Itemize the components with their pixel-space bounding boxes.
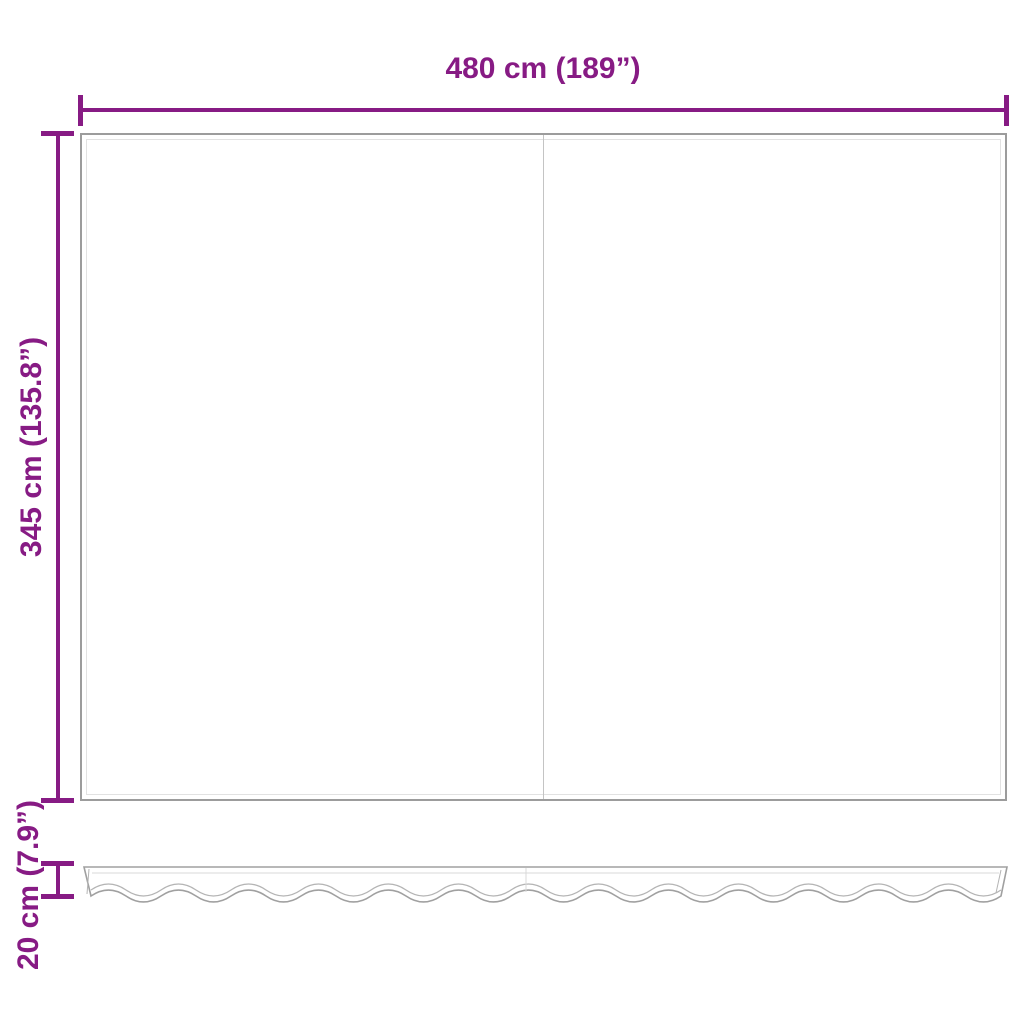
fabric-panel-center-seam xyxy=(543,135,544,799)
dimension-end-cap xyxy=(41,894,74,899)
dimension-end-cap xyxy=(41,131,74,136)
valance-strip xyxy=(80,864,1010,914)
valance-outline xyxy=(84,867,1007,902)
height-dimension-label: 345 cm (135.8”) xyxy=(17,337,47,557)
dimension-end-cap xyxy=(1004,95,1009,126)
product-dimension-diagram: 480 cm (189”) 345 cm (135.8”) 20 cm (7.9… xyxy=(0,0,1024,1024)
height-dimension-line xyxy=(56,133,60,801)
valance-height-dimension-line xyxy=(56,863,60,897)
awning-fabric-panel xyxy=(80,133,1007,801)
width-dimension-line xyxy=(79,108,1008,112)
valance-height-dimension-label: 20 cm (7.9”) xyxy=(14,800,44,970)
dimension-end-cap xyxy=(41,861,74,866)
width-dimension-label: 480 cm (189”) xyxy=(445,54,640,84)
dimension-end-cap xyxy=(78,95,83,126)
dimension-end-cap xyxy=(41,798,74,803)
